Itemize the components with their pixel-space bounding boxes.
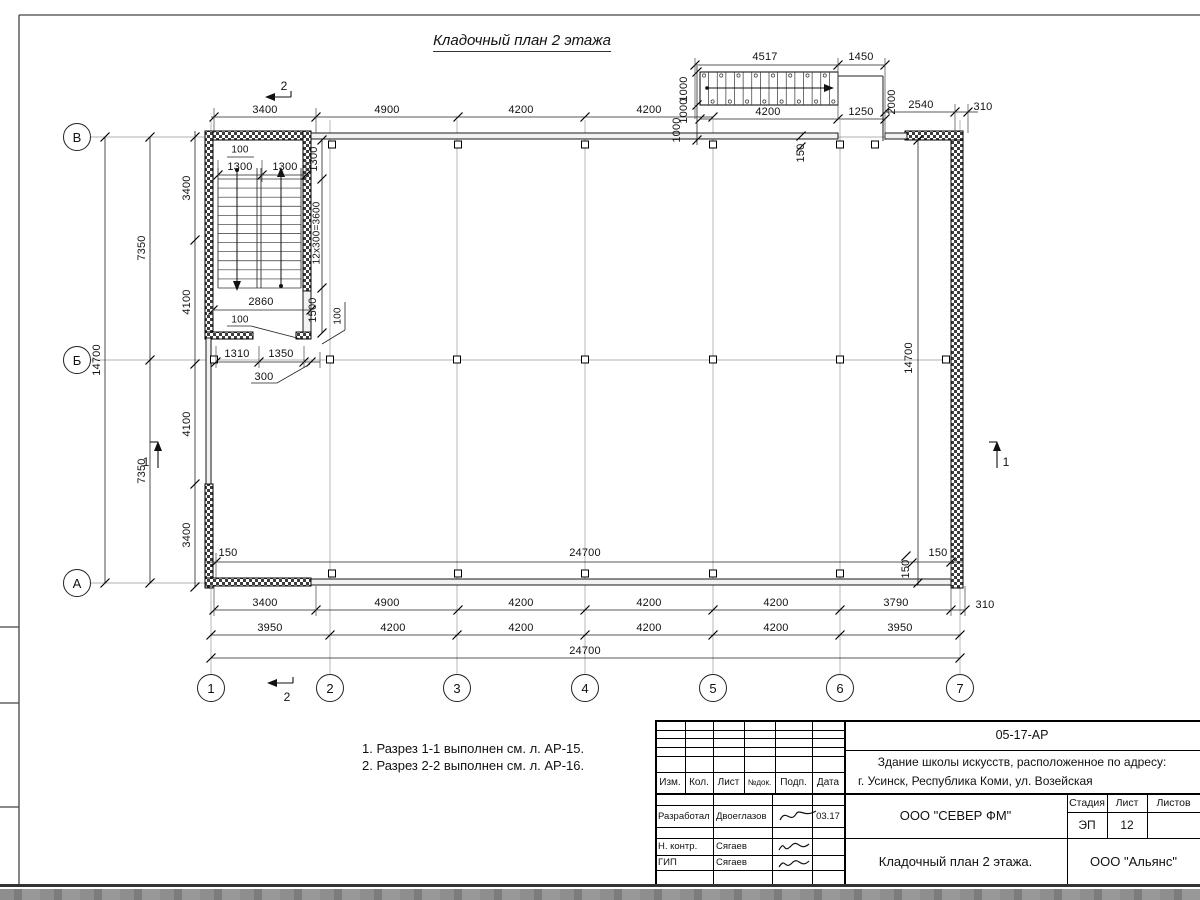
titleblock-line — [844, 750, 1200, 751]
dim-label: 3400 — [252, 597, 277, 609]
dim-label: 4200 — [763, 597, 788, 609]
dim-label: 3950 — [887, 622, 912, 634]
dim-label: 4517 — [752, 51, 777, 63]
dim-label: 4200 — [636, 622, 661, 634]
titleblock-line — [1067, 812, 1200, 813]
titleblock-line — [655, 870, 844, 871]
titleblock-line — [1107, 793, 1108, 838]
dim-label: 24700 — [569, 645, 601, 657]
sheet-title: Кладочный план 2 этажа. — [844, 838, 1067, 885]
dim-label: 4200 — [636, 597, 661, 609]
dim-label: 14700 — [91, 344, 103, 376]
stage-label: Стадия — [1067, 793, 1107, 812]
dim-label: 150 — [795, 144, 807, 163]
sheets-label: Листов — [1147, 793, 1200, 812]
titleblock-line — [844, 838, 1200, 839]
dim-label: 1300 — [308, 146, 320, 171]
stage-value: ЭП — [1067, 812, 1107, 838]
dim-label: 4100 — [181, 411, 193, 436]
dim-label: 4900 — [374, 104, 399, 116]
col-header-data: Дата — [812, 772, 844, 793]
dim-label: 1500 — [307, 297, 319, 322]
dim-label: 100 — [231, 315, 248, 326]
sheet-number: 12 — [1107, 812, 1147, 838]
col-header-list: Лист — [713, 772, 744, 793]
titleblock-line — [655, 720, 657, 885]
titleblock-line — [1147, 793, 1148, 838]
note-line: 2. Разрез 2-2 выполнен см. л. АР-16. — [362, 757, 584, 774]
titleblock-line — [655, 805, 844, 806]
dim-label: 14700 — [903, 342, 915, 374]
axis-bubble: Б — [63, 346, 91, 374]
titleblock-line — [1067, 793, 1068, 885]
dim-label: 1 — [1003, 455, 1010, 469]
dim-label: 310 — [976, 599, 995, 611]
axis-bubble: В — [63, 123, 91, 151]
dim-label: 3790 — [883, 597, 908, 609]
role-developer: Разработал — [656, 805, 714, 827]
axis-bubble: А — [63, 569, 91, 597]
titleblock-line — [655, 772, 844, 773]
dim-label: 150 — [900, 560, 912, 579]
dim-label: 1310 — [224, 348, 249, 360]
dim-label: 4200 — [755, 106, 780, 118]
sheets-total — [1147, 812, 1200, 838]
sheet-bottom-border — [0, 884, 1200, 887]
axis-bubble: 3 — [443, 674, 471, 702]
dim-label: 3400 — [181, 175, 193, 200]
dim-label: 3400 — [252, 104, 277, 116]
contractor-name: ООО "Альянс" — [1067, 838, 1200, 885]
dim-label: 1350 — [268, 348, 293, 360]
dim-label: 3400 — [181, 522, 193, 547]
project-name-line1: Здание школы искусств, расположенное по … — [844, 752, 1200, 772]
dim-label: 1300 — [227, 161, 252, 173]
dim-label: 1250 — [848, 106, 873, 118]
dim-label: 2 — [284, 690, 291, 704]
dim-label: 100 — [231, 145, 248, 156]
org-name: ООО "СЕВЕР ФМ" — [844, 793, 1067, 838]
doc-code: 05-17-АР — [844, 720, 1200, 750]
titleblock-line — [655, 793, 1200, 795]
dim-label: 2860 — [248, 296, 273, 308]
dim-label: 2 — [281, 79, 288, 93]
col-header-kol: Кол. — [685, 772, 713, 793]
dim-label: 2000 — [886, 89, 898, 114]
scan-edge — [0, 889, 1200, 900]
titleblock-line — [844, 720, 846, 885]
dim-label: 300 — [255, 371, 274, 383]
titleblock-line — [655, 730, 844, 731]
dim-label: 150 — [219, 547, 238, 559]
axis-bubble: 1 — [197, 674, 225, 702]
dim-label: 3950 — [257, 622, 282, 634]
notes: 1. Разрез 1-1 выполнен см. л. АР-15. 2. … — [362, 740, 584, 774]
drawing-sheet: Кладочный план 2 этажа 1. Разрез 1-1 вып… — [0, 0, 1200, 900]
dim-label: 4100 — [181, 289, 193, 314]
role-gip: ГИП — [656, 855, 714, 870]
axis-bubble: 7 — [946, 674, 974, 702]
col-header-izm: Изм. — [655, 772, 685, 793]
titleblock-line — [655, 756, 844, 757]
dim-label: 310 — [974, 101, 993, 113]
titleblock-line — [655, 827, 844, 828]
dim-label: 4200 — [636, 104, 661, 116]
titleblock-line — [713, 720, 714, 885]
project-name-line2: г. Усинск, Республика Коми, ул. Возейска… — [844, 771, 1198, 791]
titleblock-line — [655, 720, 1200, 722]
dim-label: 4200 — [380, 622, 405, 634]
axis-bubble: 5 — [699, 674, 727, 702]
titleblock-line — [655, 855, 844, 856]
axis-bubble: 2 — [316, 674, 344, 702]
dim-label: 1300 — [272, 161, 297, 173]
role-ncontrol: Н. контр. — [656, 838, 714, 855]
dim-label: 7350 — [136, 235, 148, 260]
dim-label: 1 — [143, 455, 150, 469]
dim-label: 4900 — [374, 597, 399, 609]
titleblock-line — [812, 772, 813, 885]
dim-label: 1000 — [671, 117, 683, 142]
name-developer: Двоеглазов — [713, 805, 775, 827]
dim-label: 12x300=3600 — [312, 201, 323, 264]
signature — [776, 854, 812, 874]
dim-label: 4200 — [508, 597, 533, 609]
axis-bubble: 6 — [826, 674, 854, 702]
dim-label: 4200 — [508, 104, 533, 116]
sheet-label: Лист — [1107, 793, 1147, 812]
titleblock-line — [655, 747, 844, 748]
col-header-ndok: №док. — [744, 772, 775, 793]
col-header-podp: Подп. — [775, 772, 812, 793]
titleblock-line — [772, 793, 773, 885]
name-gip: Сягаев — [713, 855, 775, 870]
dim-label: 24700 — [569, 547, 601, 559]
dim-label: 100 — [333, 307, 344, 324]
dim-label: 2540 — [908, 99, 933, 111]
dim-label: 1450 — [848, 51, 873, 63]
drawing-title: Кладочный план 2 этажа — [433, 32, 611, 52]
titleblock-line — [655, 838, 844, 839]
titleblock-line — [655, 738, 844, 739]
axis-bubble: 4 — [571, 674, 599, 702]
note-line: 1. Разрез 1-1 выполнен см. л. АР-15. — [362, 740, 584, 757]
dim-label: 4200 — [763, 622, 788, 634]
name-ncontrol: Сягаев — [713, 838, 775, 855]
dim-label: 4200 — [508, 622, 533, 634]
dim-label: 150 — [929, 547, 948, 559]
